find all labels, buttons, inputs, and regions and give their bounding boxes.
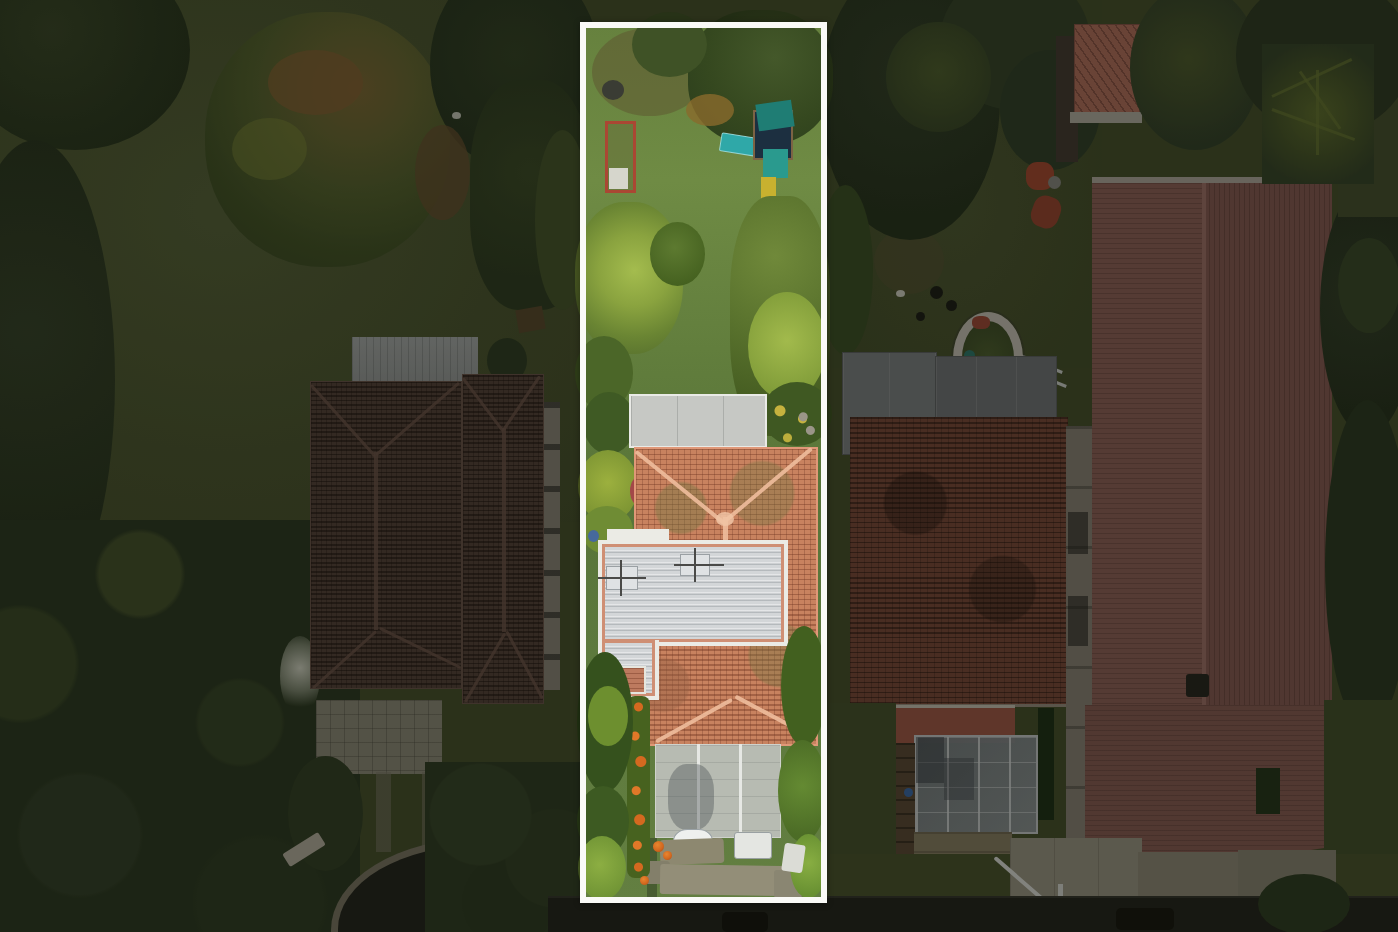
dim-overlay-right [827, 0, 1398, 932]
dim-overlay-left [0, 0, 580, 932]
dim-overlay-bottom [580, 903, 827, 932]
property-boundary-highlight [580, 22, 827, 903]
aerial-photo-scene [0, 0, 1398, 932]
dim-overlay-top [580, 0, 827, 22]
